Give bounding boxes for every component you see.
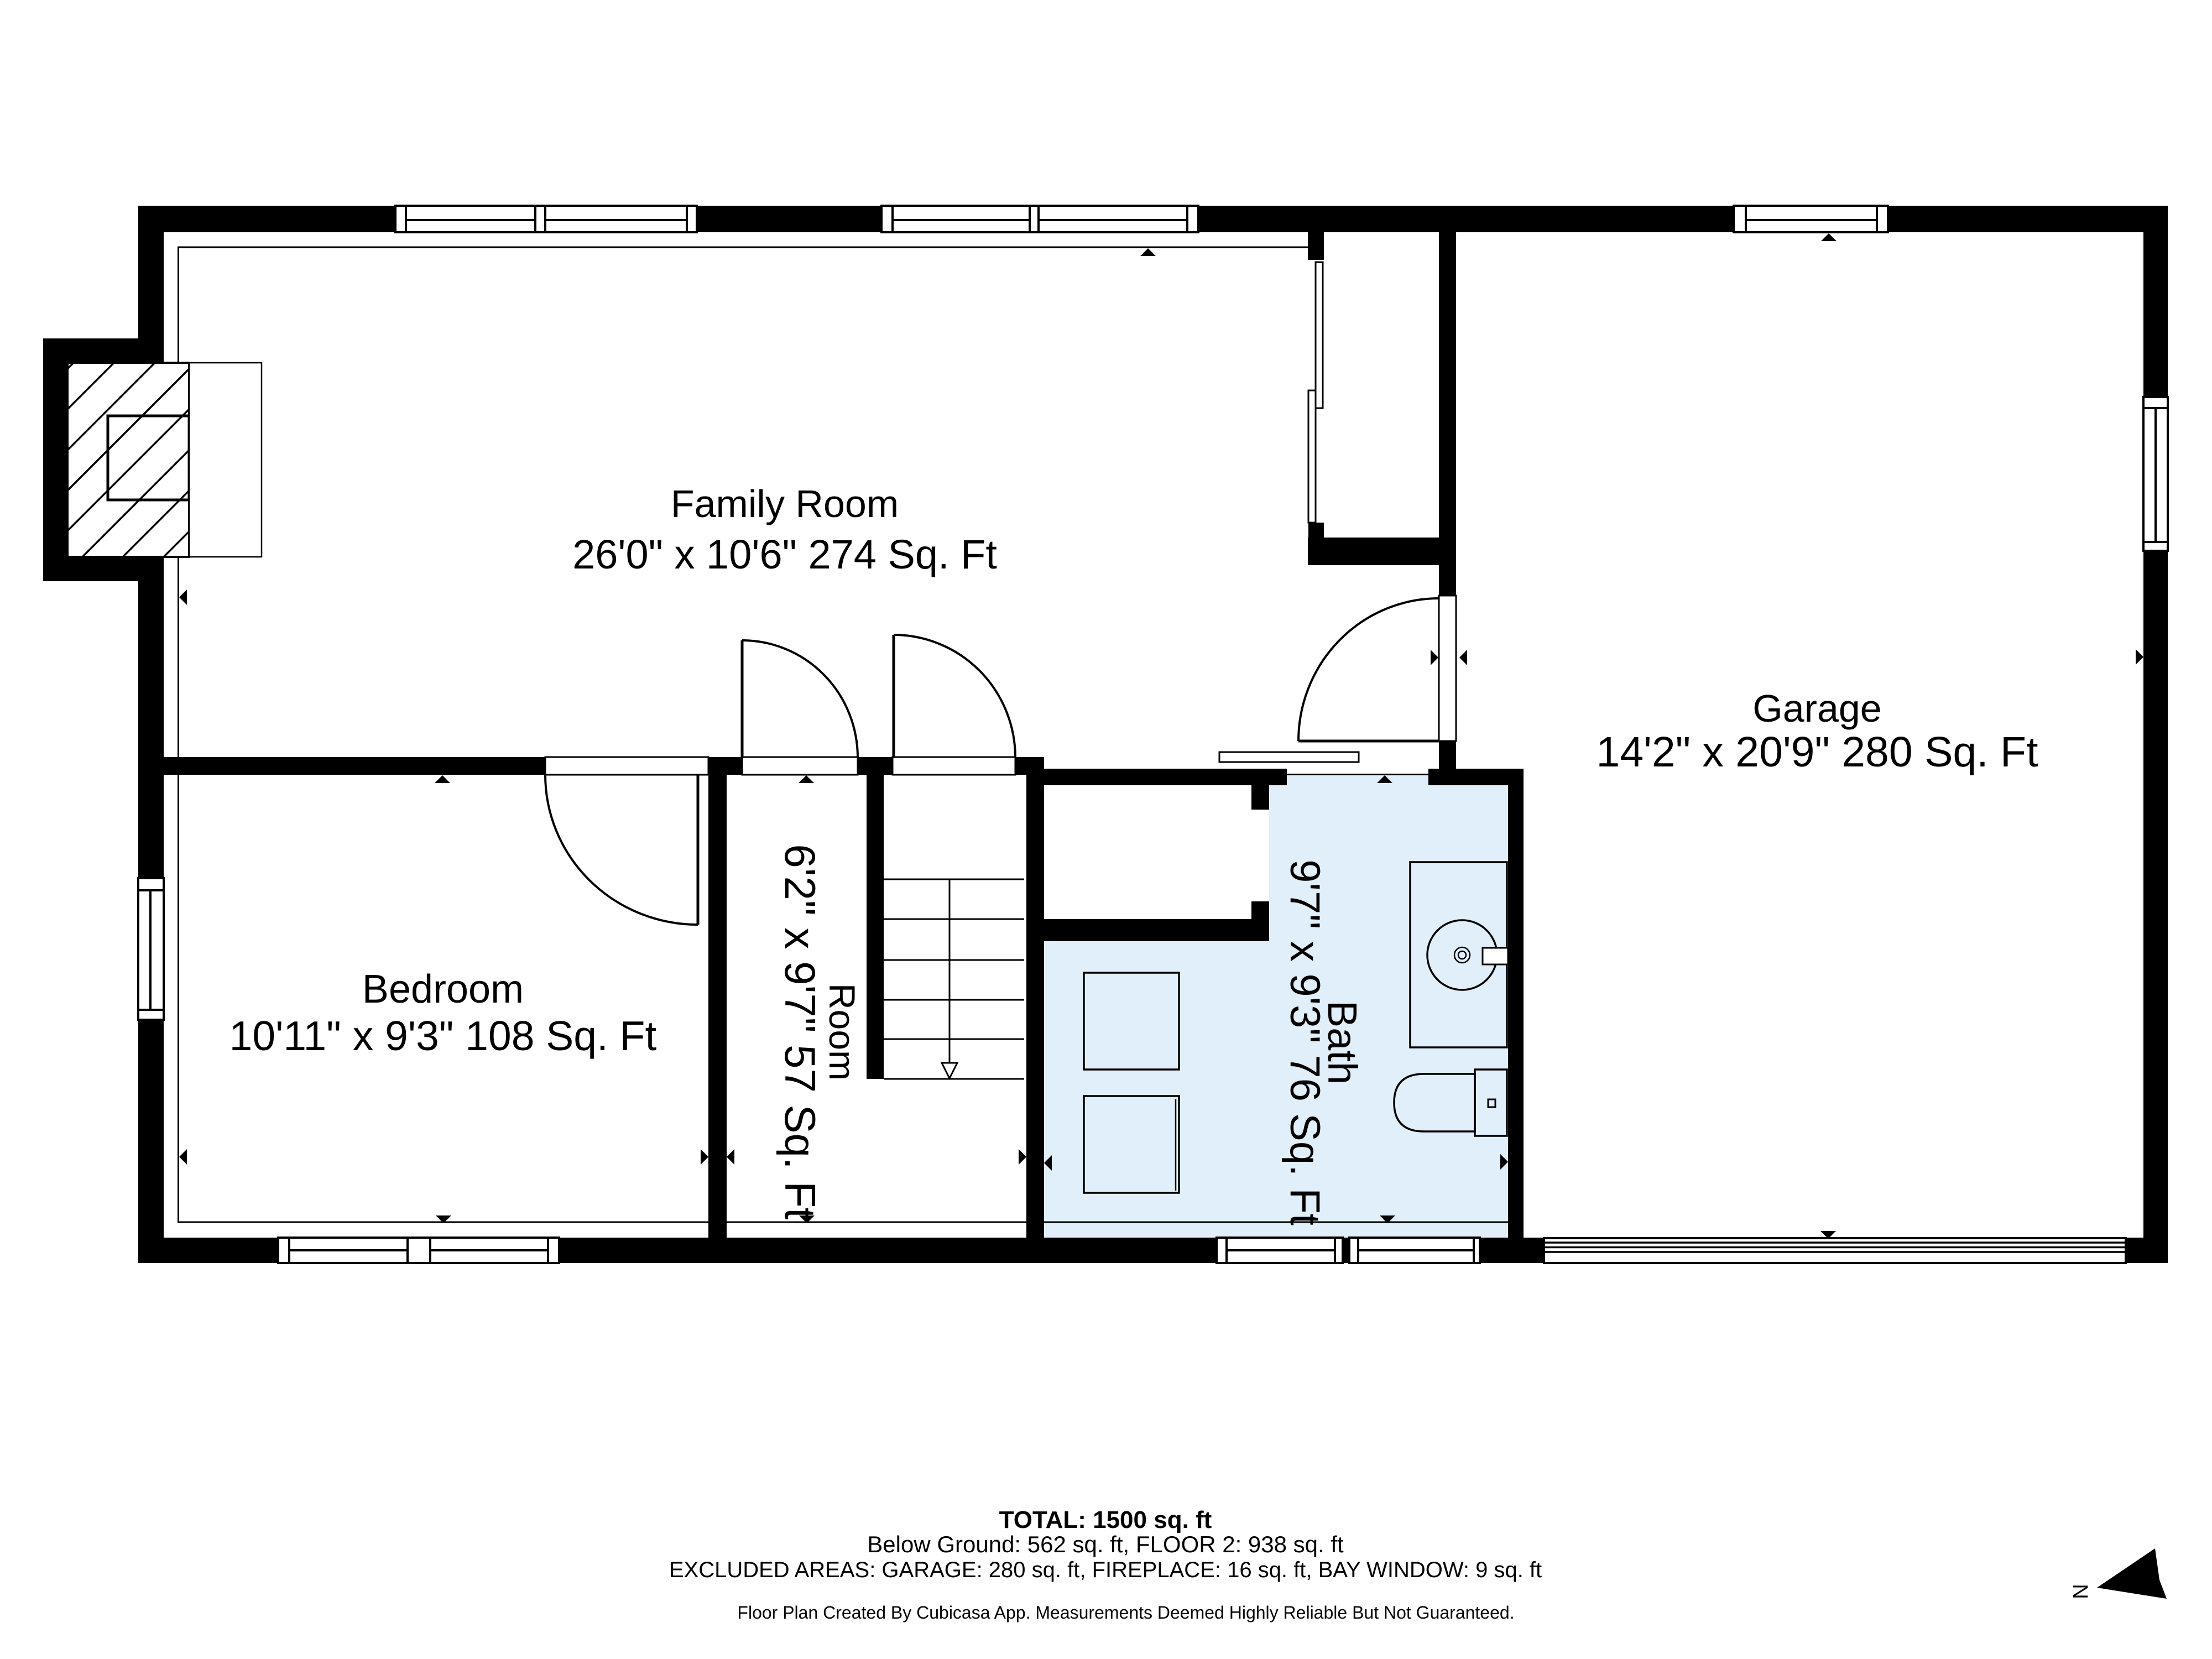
svg-text:14'2" x 20'9" 280 Sq. Ft: 14'2" x 20'9" 280 Sq. Ft: [1597, 728, 2038, 776]
svg-text:Family Room: Family Room: [671, 482, 899, 525]
svg-text:Below Ground: 562 sq. ft, FLOO: Below Ground: 562 sq. ft, FLOOR 2: 938 s…: [867, 1531, 1344, 1557]
svg-text:26'0" x 10'6" 274 Sq. Ft: 26'0" x 10'6" 274 Sq. Ft: [572, 531, 997, 577]
svg-text:Floor Plan Created By Cubicasa: Floor Plan Created By Cubicasa App. Meas…: [737, 1603, 1514, 1623]
svg-text:10'11" x 9'3" 108 Sq. Ft: 10'11" x 9'3" 108 Sq. Ft: [229, 1013, 657, 1059]
svg-text:EXCLUDED AREAS: GARAGE: 280 sq: EXCLUDED AREAS: GARAGE: 280 sq. ft, FIRE…: [669, 1558, 1542, 1582]
svg-text:9'7" x 9'3" 76 Sq. Ft: 9'7" x 9'3" 76 Sq. Ft: [1281, 859, 1328, 1225]
svg-text:Room: Room: [822, 983, 863, 1081]
svg-text:TOTAL: 1500 sq. ft: TOTAL: 1500 sq. ft: [999, 1506, 1212, 1533]
svg-text:N: N: [2068, 1584, 2091, 1599]
svg-text:6'2" x 9'7" 57 Sq. Ft: 6'2" x 9'7" 57 Sq. Ft: [776, 844, 825, 1220]
svg-text:Garage: Garage: [1752, 687, 1881, 730]
svg-text:Bedroom: Bedroom: [362, 967, 524, 1011]
